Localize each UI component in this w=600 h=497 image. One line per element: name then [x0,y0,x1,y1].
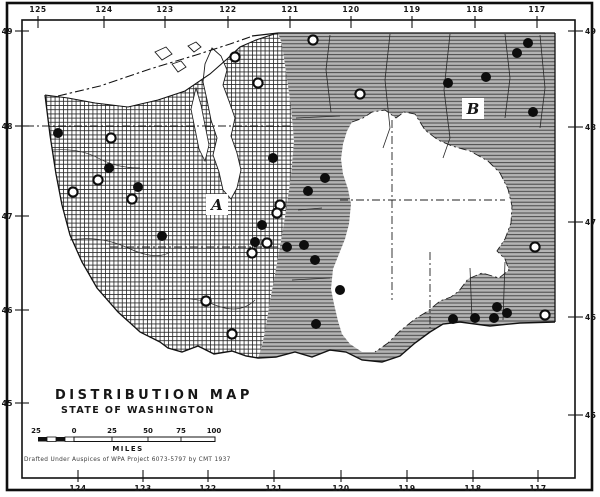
longitude-label: 118 [466,5,483,14]
open-circle-marker [262,238,271,247]
scale-number: 0 [72,427,77,435]
scale-bar: 250255075100 MILES [31,427,221,453]
filled-dot-marker [528,107,538,117]
open-circle-marker [355,89,364,98]
scale-number: 50 [143,427,153,435]
longitude-label: 122 [219,5,236,14]
filled-dot-marker [311,319,321,329]
filled-dot-marker [282,242,292,252]
scale-bar-unit: MILES [112,445,143,453]
scanned-distribution-map-page: 125124123122121120119118117 124123122121… [0,0,600,497]
region-a-letter: A [209,196,223,214]
filled-dot-marker [310,255,320,265]
longitude-label: 122 [199,484,216,493]
filled-dot-marker [335,285,345,295]
filled-dot-marker [250,237,260,247]
latitude-label: 47 [2,212,13,221]
latitude-label: 47 [585,218,596,227]
latitude-label: 46 [2,306,13,315]
filled-dot-marker [470,313,480,323]
scale-number: 25 [107,427,117,435]
filled-dot-marker [299,240,309,250]
latitude-label: 48 [585,123,596,132]
longitude-label: 121 [265,484,282,493]
filled-dot-marker [320,173,330,183]
filled-dot-marker [512,48,522,58]
scale-number: 100 [207,427,222,435]
region-label-b: B [462,98,484,119]
washington-distribution-map: 125124123122121120119118117 124123122121… [0,0,600,497]
map-subtitle: STATE OF WASHINGTON [61,405,215,416]
longitude-label: 121 [281,5,298,14]
left-latitude-ticks: 4948474645 [2,27,29,408]
region-label-a: A [206,194,228,215]
filled-dot-marker [502,308,512,318]
filled-dot-marker [481,72,491,82]
filled-dot-marker [303,186,313,196]
longitude-label: 123 [134,484,151,493]
filled-dot-marker [523,38,533,48]
filled-dot-marker [492,302,502,312]
longitude-label: 124 [95,5,112,14]
open-circle-marker [530,242,539,251]
longitude-label: 117 [528,5,545,14]
scale-number: 75 [176,427,186,435]
longitude-label: 120 [342,5,359,14]
map-title: DISTRIBUTION MAP [55,388,253,403]
filled-dot-marker [133,182,143,192]
latitude-label: 45 [2,399,13,408]
longitude-label: 120 [332,484,349,493]
region-b-letter: B [466,100,480,118]
filled-dot-marker [157,231,167,241]
longitude-label: 124 [69,484,86,493]
filled-dot-marker [104,163,114,173]
latitude-label: 48 [2,122,13,131]
scale-number: 25 [31,427,41,435]
latitude-label: 46 [585,313,596,322]
open-circle-marker [272,208,281,217]
filled-dot-marker [443,78,453,88]
filled-dot-marker [53,128,63,138]
filled-dot-marker [268,153,278,163]
longitude-label: 123 [156,5,173,14]
open-circle-marker [540,310,549,319]
latitude-label: 45 [585,411,596,420]
open-circle-marker [227,329,236,338]
open-circle-marker [68,187,77,196]
credit-line: Drafted Under Auspices of WPA Project 60… [24,457,231,463]
open-circle-marker [253,78,262,87]
top-longitude-ticks: 125124123122121120119118117 [29,5,545,28]
longitude-label: 119 [403,5,420,14]
open-circle-marker [201,296,210,305]
filled-dot-marker [448,314,458,324]
longitude-label: 119 [398,484,415,493]
san-juan-islands [155,42,201,72]
open-circle-marker [230,52,239,61]
open-circle-marker [127,194,136,203]
latitude-label: 49 [585,27,596,36]
scale-bar-numbers: 250255075100 [31,427,221,435]
open-circle-marker [247,248,256,257]
latitude-label: 49 [2,27,13,36]
longitude-label: 117 [529,484,546,493]
filled-dot-marker [257,220,267,230]
longitude-label: 118 [464,484,481,493]
open-circle-marker [106,133,115,142]
filled-dot-marker [489,313,499,323]
open-circle-marker [93,175,102,184]
longitude-label: 125 [29,5,46,14]
open-circle-marker [308,35,317,44]
